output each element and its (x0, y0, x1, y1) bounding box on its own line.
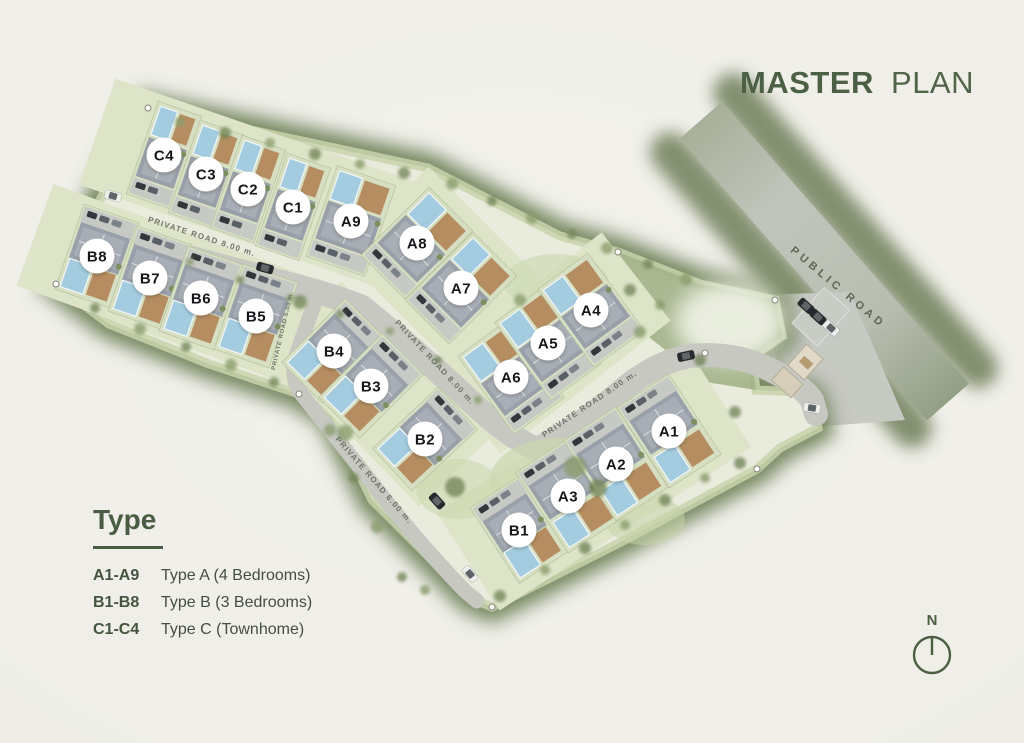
legend-item-B1-B8: B1-B8Type B (3 Bedrooms) (93, 594, 312, 612)
north-label: N (906, 612, 958, 629)
unit-label-C3: C3 (189, 157, 224, 192)
tree-icon (309, 148, 321, 160)
unit-label-A3: A3 (551, 479, 586, 514)
svg-text:B2: B2 (415, 431, 435, 448)
tree-icon (269, 377, 279, 387)
unit-label-A9: A9 (334, 204, 369, 239)
tree-icon (579, 542, 591, 554)
svg-text:A7: A7 (451, 280, 471, 297)
legend-item-label: Type C (Townhome) (161, 621, 304, 639)
legend-item-C1-C4: C1-C4Type C (Townhome) (93, 621, 312, 639)
unit-label-C2: C2 (231, 172, 266, 207)
svg-text:C2: C2 (238, 181, 258, 198)
tree-icon (700, 473, 710, 483)
unit-label-B5: B5 (239, 299, 274, 334)
unit-label-A6: A6 (494, 360, 529, 395)
boundary-marker (53, 281, 59, 287)
tree-icon (734, 457, 746, 469)
tree-icon (564, 456, 586, 478)
north-indicator: N (906, 612, 958, 680)
svg-text:B6: B6 (191, 290, 211, 307)
tree-icon (445, 477, 465, 497)
master-plan-page: PRIVATE ROAD 8.00 m.PRIVATE ROAD 5.00 m.… (0, 0, 1024, 743)
unit-label-B7: B7 (133, 261, 168, 296)
svg-text:A2: A2 (606, 456, 626, 473)
unit-label-A4: A4 (574, 293, 609, 328)
tree-icon (589, 479, 607, 497)
unit-label-B6: B6 (184, 281, 219, 316)
tree-icon (659, 494, 671, 506)
svg-text:C1: C1 (283, 199, 303, 216)
tree-icon (265, 138, 275, 148)
tree-icon (540, 565, 550, 575)
unit-label-B1: B1 (502, 513, 537, 548)
svg-text:B4: B4 (324, 343, 344, 360)
tree-icon (655, 300, 665, 310)
legend-item-A1-A9: A1-A9Type A (4 Bedrooms) (93, 567, 312, 585)
title-light: PLAN (891, 65, 974, 100)
legend: Type A1-A9Type A (4 Bedrooms)B1-B8Type B… (93, 504, 312, 648)
tree-icon (219, 127, 231, 139)
tree-icon (371, 521, 383, 533)
tree-icon (567, 229, 577, 239)
tree-icon (643, 259, 653, 269)
svg-text:C4: C4 (154, 147, 174, 164)
title-bold: MASTER (740, 65, 874, 100)
svg-text:A8: A8 (407, 235, 427, 252)
legend-underline (93, 546, 163, 549)
unit-label-A1: A1 (652, 414, 687, 449)
tree-icon (236, 276, 244, 284)
unit-label-B4: B4 (317, 334, 352, 369)
unit-label-A2: A2 (599, 447, 634, 482)
tree-icon (181, 342, 191, 352)
svg-text:A3: A3 (558, 488, 578, 505)
legend-item-label: Type B (3 Bedrooms) (161, 594, 312, 612)
tree-icon (620, 520, 630, 530)
tree-icon (494, 590, 506, 602)
boundary-marker (772, 297, 778, 303)
svg-text:A9: A9 (341, 213, 361, 230)
legend-item-code: A1-A9 (93, 567, 161, 585)
tree-icon (90, 303, 100, 313)
boundary-marker (296, 391, 302, 397)
tree-icon (349, 473, 359, 483)
unit-label-B3: B3 (354, 369, 389, 404)
svg-text:A4: A4 (581, 302, 601, 319)
tree-icon (624, 284, 636, 296)
tree-icon (293, 295, 307, 309)
legend-item-label: Type A (4 Bedrooms) (161, 567, 310, 585)
svg-text:A5: A5 (538, 335, 558, 352)
svg-text:B3: B3 (361, 378, 381, 395)
north-compass-icon (910, 631, 954, 675)
legend-heading: Type (93, 504, 312, 536)
tree-icon (729, 406, 741, 418)
unit-label-B2: B2 (408, 422, 443, 457)
tree-icon (336, 310, 344, 318)
tree-icon (186, 258, 194, 266)
tree-icon (175, 117, 185, 127)
tree-icon (398, 167, 410, 179)
legend-item-code: C1-C4 (93, 621, 161, 639)
boundary-marker (754, 466, 760, 472)
unit-label-A5: A5 (531, 326, 566, 361)
svg-text:B8: B8 (87, 248, 107, 265)
tree-icon (680, 273, 692, 285)
unit-label-B8: B8 (80, 239, 115, 274)
tree-icon (397, 572, 407, 582)
unit-label-A8: A8 (400, 226, 435, 261)
tree-icon (420, 585, 430, 595)
tree-icon (134, 323, 146, 335)
boundary-marker (145, 105, 151, 111)
tree-icon (446, 178, 458, 190)
svg-text:C3: C3 (196, 166, 216, 183)
unit-label-C4: C4 (147, 138, 182, 173)
boundary-marker (615, 249, 621, 255)
unit-label-C1: C1 (276, 190, 311, 225)
svg-text:B5: B5 (246, 308, 266, 325)
tree-icon (601, 242, 613, 254)
tree-icon (324, 424, 336, 436)
tree-icon (225, 359, 237, 371)
svg-text:B1: B1 (509, 522, 529, 539)
boundary-marker (489, 604, 495, 610)
tree-icon (355, 159, 365, 169)
boundary-marker (702, 350, 708, 356)
legend-items: A1-A9Type A (4 Bedrooms)B1-B8Type B (3 B… (93, 567, 312, 639)
tree-icon (526, 212, 538, 224)
tree-icon (386, 327, 394, 335)
svg-text:A6: A6 (501, 369, 521, 386)
tree-icon (487, 196, 497, 206)
legend-item-code: B1-B8 (93, 594, 161, 612)
svg-text:B7: B7 (140, 270, 160, 287)
tree-icon (514, 294, 526, 306)
svg-text:A1: A1 (659, 423, 679, 440)
unit-label-A7: A7 (444, 271, 479, 306)
tree-icon (634, 326, 646, 338)
page-title: MASTER PLAN (740, 65, 974, 101)
